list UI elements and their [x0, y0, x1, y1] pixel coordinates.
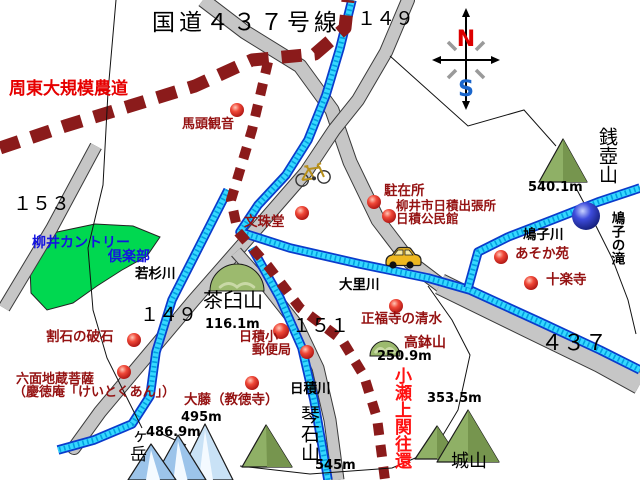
- label-route-153: １５３: [13, 195, 70, 214]
- label-kotoishiyama: 琴石山: [299, 405, 318, 462]
- label-kotoishi-elev: 545m: [315, 459, 356, 472]
- label-keitokuan: （慶徳庵「けいとくあん」）: [13, 386, 175, 399]
- label-map-title: 国道４３７号線: [152, 12, 341, 35]
- label-route-149-top: １４９: [357, 10, 414, 29]
- label-chausuyama: 茶臼山: [203, 290, 263, 310]
- label-chausu-elev: 116.1m: [205, 318, 260, 331]
- label-wakasugigawa: 若杉川: [135, 268, 176, 282]
- label-route-151: １５１: [292, 317, 349, 336]
- label-kose-kaido: 小瀬上関往還: [392, 367, 409, 469]
- label-wariishi: 割石の破石: [46, 331, 114, 345]
- label-batokannon: 馬頭観音: [182, 118, 234, 131]
- label-route-149-mid: １４９: [140, 306, 197, 325]
- label-monjudo: 文珠堂: [244, 216, 285, 230]
- label-shuto-farm-road: 周東大規模農道: [9, 81, 128, 98]
- label-ofuji-kyotokuji: 大藤（教徳寺）: [184, 394, 279, 408]
- label-route-437: ４３７: [541, 333, 607, 355]
- map-label-layer: 国道４３７号線１４９１５３１４９１５１４３７周東大規模農道小瀬上関往還馬頭観音文…: [0, 0, 640, 480]
- label-shiroyama-elev: 353.5m: [427, 392, 482, 405]
- label-osatogawa: 大里川: [339, 279, 380, 293]
- label-kominkan: 日積公民館: [396, 213, 459, 226]
- label-post-office: 郵便局: [252, 344, 291, 357]
- label-golf-name-2: 倶楽部: [108, 250, 150, 264]
- label-chuzaisho: 駐在所: [384, 185, 425, 199]
- label-shiroyama: 城山: [451, 453, 487, 471]
- label-shofukuji-spring: 正福寺の清水: [361, 313, 442, 327]
- label-takahachi-elev: 250.9m: [377, 350, 432, 363]
- label-gatake-elev: 486.9m: [146, 426, 201, 439]
- label-jurakuji: 十楽寺: [546, 274, 587, 288]
- label-zenitsubo-elev: 540.1m: [528, 181, 583, 194]
- label-hatoko-falls: 鳩子の滝: [609, 211, 623, 265]
- label-odake-elev: 495m: [181, 411, 222, 424]
- label-gatake: ヶ岳: [127, 428, 144, 462]
- label-hizumigawa: 日積川: [290, 383, 331, 397]
- label-golf-name-1: 柳井カントリー: [32, 236, 130, 250]
- label-zenitsuboyama: 銭壺山: [597, 127, 616, 184]
- label-takahachiyama: 高鉢山: [404, 336, 446, 350]
- label-asoka-en: あそか苑: [515, 248, 569, 262]
- map-canvas: NS 国道４３７号線１４９１５３１４９１５１４３７周東大規模農道小瀬上関往還馬頭…: [0, 0, 640, 480]
- label-hatokogawa: 鳩子川: [523, 229, 564, 243]
